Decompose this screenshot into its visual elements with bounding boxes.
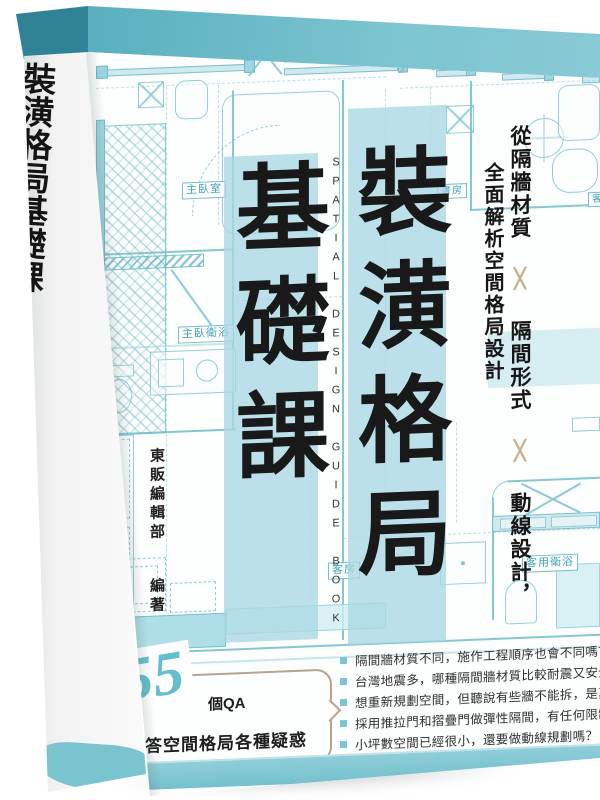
plan-highlight bbox=[488, 328, 600, 388]
plan-wall bbox=[470, 81, 472, 211]
bullet-icon bbox=[340, 720, 347, 727]
bullet-icon bbox=[340, 678, 347, 685]
bullet-icon bbox=[340, 741, 347, 748]
plan-cross-box bbox=[138, 81, 164, 108]
plan-cross-box bbox=[446, 105, 474, 134]
plan-wall bbox=[342, 80, 344, 640]
spine-author-role: 編著 bbox=[0, 588, 2, 621]
cross-icon: ╳ bbox=[509, 440, 530, 465]
rug-icon bbox=[170, 581, 216, 613]
cover-author-name: 東販編輯部 bbox=[148, 447, 165, 543]
bullet-icon bbox=[340, 657, 347, 664]
spine-author: 東販編輯部 編著 bbox=[0, 478, 7, 621]
tagline-segment: 從隔牆材質 bbox=[508, 124, 531, 240]
tagline-segment: 隔間形式 bbox=[508, 319, 531, 412]
appliance-icon bbox=[558, 84, 600, 142]
badge-unit: 個QA bbox=[208, 692, 246, 715]
spine-author-name: 東販編輯部 bbox=[0, 478, 8, 559]
plan-label-box bbox=[572, 417, 600, 432]
cross-icon: ╳ bbox=[509, 268, 530, 293]
cover-title-column-right: 裝潢格局 bbox=[350, 141, 444, 601]
cover-tagline-line1: 從隔牆材質 ╳ 隔間形式 ╳ 動線設計， bbox=[509, 125, 530, 608]
cover-subtitle-en: SPATIAL DESIGN GUIDE BOOK bbox=[330, 156, 341, 631]
door-leaf bbox=[171, 269, 214, 327]
cover-tagline-line2: 全面解析空間格局設計 bbox=[482, 162, 502, 383]
chair-icon bbox=[552, 148, 598, 194]
room-label-master-bedroom: 主臥室 bbox=[182, 181, 226, 200]
tagline-segment: 動線設計， bbox=[508, 491, 531, 607]
furniture-icon bbox=[158, 358, 184, 387]
plan-wall bbox=[96, 64, 246, 77]
plan-line bbox=[456, 422, 457, 522]
book-product-photo: 裝潢格局基礎課 SPATIAL DESIGN GUIDE BOOK 東販編輯部 … bbox=[0, 0, 600, 800]
cover-title-column-left: 基礎課 bbox=[228, 157, 322, 503]
cover-author: 東販編輯部 編著 bbox=[149, 447, 164, 616]
spine-publisher: 東販出版 bbox=[7, 699, 27, 768]
shower-icon bbox=[556, 563, 600, 629]
room-label-living-partial: 客 bbox=[588, 191, 600, 207]
cover-author-role: 編著 bbox=[148, 577, 165, 616]
spine-title: 裝潢格局基礎課 bbox=[8, 61, 55, 294]
bullet-icon bbox=[340, 699, 347, 706]
cabinet-icon bbox=[551, 515, 597, 528]
question-list: 隔間牆材質不同，施作工程順序也會不同嗎？ 台灣地震多，哪種隔間牆材質比較耐震又安… bbox=[340, 638, 600, 755]
plan-line bbox=[166, 87, 167, 612]
furniture-icon bbox=[175, 79, 208, 119]
spine-subtitle-en: SPATIAL DESIGN GUIDE BOOK bbox=[0, 299, 23, 624]
